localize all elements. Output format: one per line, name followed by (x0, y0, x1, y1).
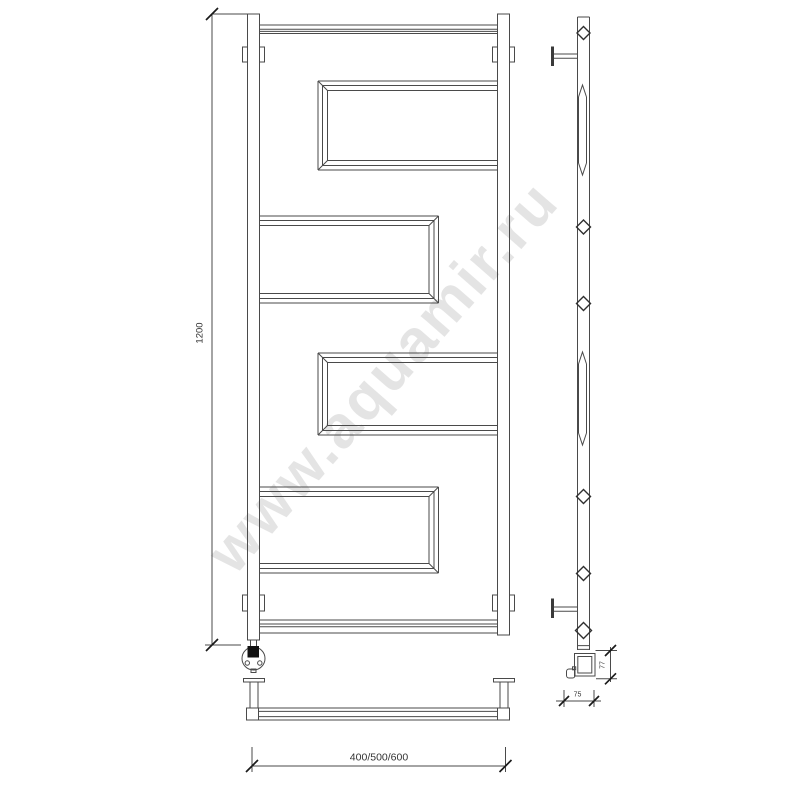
plug-pin-left (245, 661, 249, 665)
bar-cross-section-diamond (577, 27, 590, 40)
side-view: 77 75 (553, 17, 618, 707)
plug-neck (251, 640, 257, 647)
side-wall-bracket-bottom (553, 599, 578, 619)
bottom-bar (260, 620, 498, 633)
element-housing-inner (578, 657, 592, 674)
towel-panel (318, 81, 498, 170)
bar-cross-section-diamond (577, 297, 591, 311)
top-bar (260, 25, 498, 34)
plug-contact-block (248, 646, 260, 658)
top-bar-inner-lines (260, 29, 498, 31)
plug-pin-right (258, 661, 262, 665)
bottom-view-bar (247, 708, 510, 720)
wall-bracket-top-left (243, 47, 265, 62)
wall-bracket-bottom-left (243, 595, 265, 611)
side-post (578, 17, 590, 650)
bar-cross-section-diamond (577, 490, 591, 504)
watermark: www.aquamir.ru (193, 168, 571, 586)
bar-cross-section-diamond (577, 567, 591, 581)
side-separator-lines (578, 646, 590, 650)
drawing-svg: www.aquamir.ru 1200 (0, 0, 800, 800)
heating-element-plug (242, 640, 265, 673)
bar-cross-section-diamond (577, 220, 591, 234)
towel-panel (260, 216, 439, 303)
bottom-view-supports (244, 679, 515, 709)
bottom-view: 400/500/600 (244, 679, 515, 773)
side-bracket-arm (553, 607, 578, 611)
width-dimension-label: 400/500/600 (350, 752, 409, 764)
depth-dimension-label: 75 (574, 692, 582, 699)
bottom-bar-inner-lines (260, 624, 498, 627)
right-post (498, 14, 510, 635)
depth-dimension: 75 (556, 690, 601, 707)
bottom-view-bar-detail (259, 708, 498, 720)
width-dimension: 400/500/600 (246, 747, 512, 772)
side-wall-bracket-top (553, 47, 578, 67)
panel-side-profile (579, 352, 587, 445)
element-height-dimension: 77 (596, 645, 618, 684)
wall-bracket-bottom-right (493, 595, 515, 611)
panel-side-profile (579, 85, 587, 175)
wall-bracket-top-right (493, 47, 515, 62)
cable-hook (567, 669, 576, 678)
side-bracket-arm (553, 54, 578, 58)
heating-element-side (567, 654, 596, 679)
element-height-label: 77 (600, 661, 607, 669)
technical-drawing: www.aquamir.ru 1200 (0, 0, 800, 800)
height-dimension-label: 1200 (195, 322, 206, 343)
